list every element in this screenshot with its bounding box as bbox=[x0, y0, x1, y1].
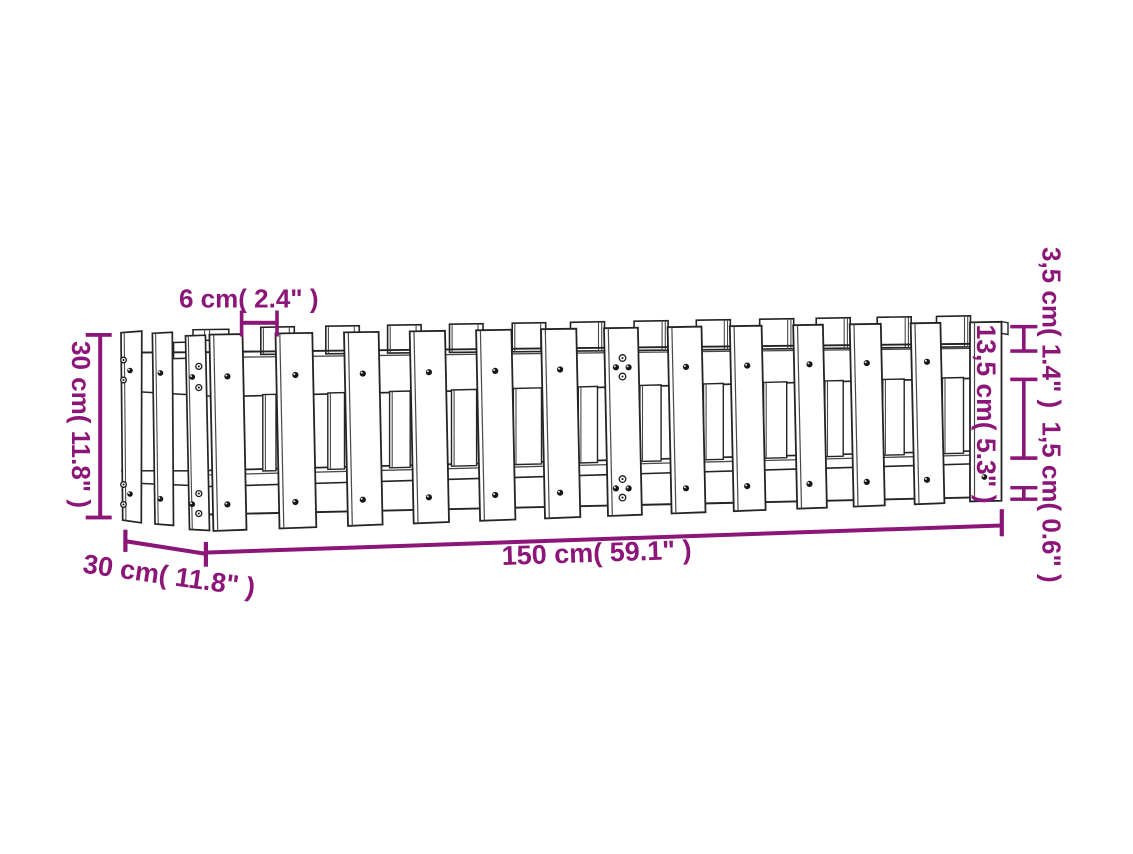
svg-text:1,5 cm( 0.6" ): 1,5 cm( 0.6" ) bbox=[1037, 422, 1067, 583]
svg-text:30 cm( 11.8" ): 30 cm( 11.8" ) bbox=[66, 341, 96, 508]
svg-text:150 cm( 59.1" ): 150 cm( 59.1" ) bbox=[501, 535, 692, 571]
svg-text:3,5 cm( 1.4" ): 3,5 cm( 1.4" ) bbox=[1037, 247, 1067, 408]
svg-text:13,5 cm( 5.3" ): 13,5 cm( 5.3" ) bbox=[971, 325, 1001, 504]
svg-text:6 cm( 2.4" ): 6 cm( 2.4" ) bbox=[179, 284, 319, 314]
